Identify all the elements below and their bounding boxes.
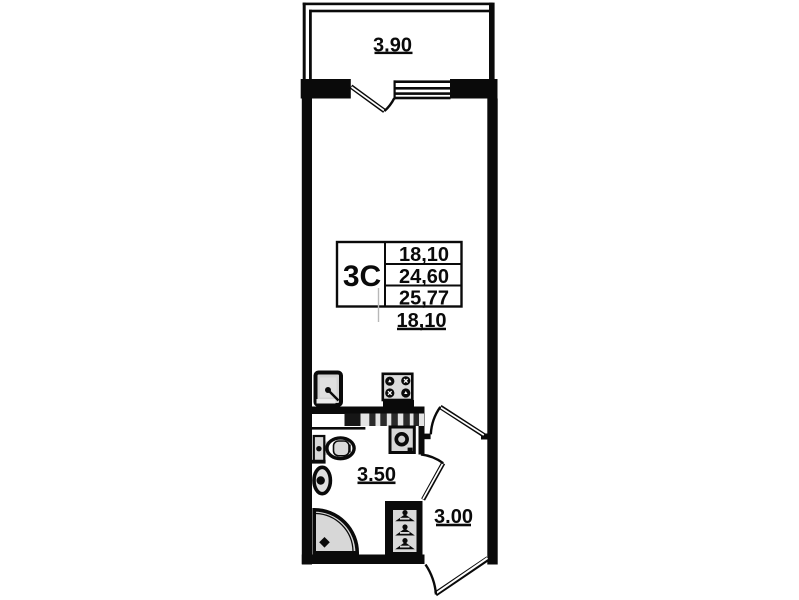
- svg-text:18,10: 18,10: [399, 244, 449, 266]
- svg-text:3С: 3С: [343, 260, 381, 293]
- svg-text:25,77: 25,77: [399, 288, 449, 310]
- svg-text:24,60: 24,60: [399, 266, 449, 288]
